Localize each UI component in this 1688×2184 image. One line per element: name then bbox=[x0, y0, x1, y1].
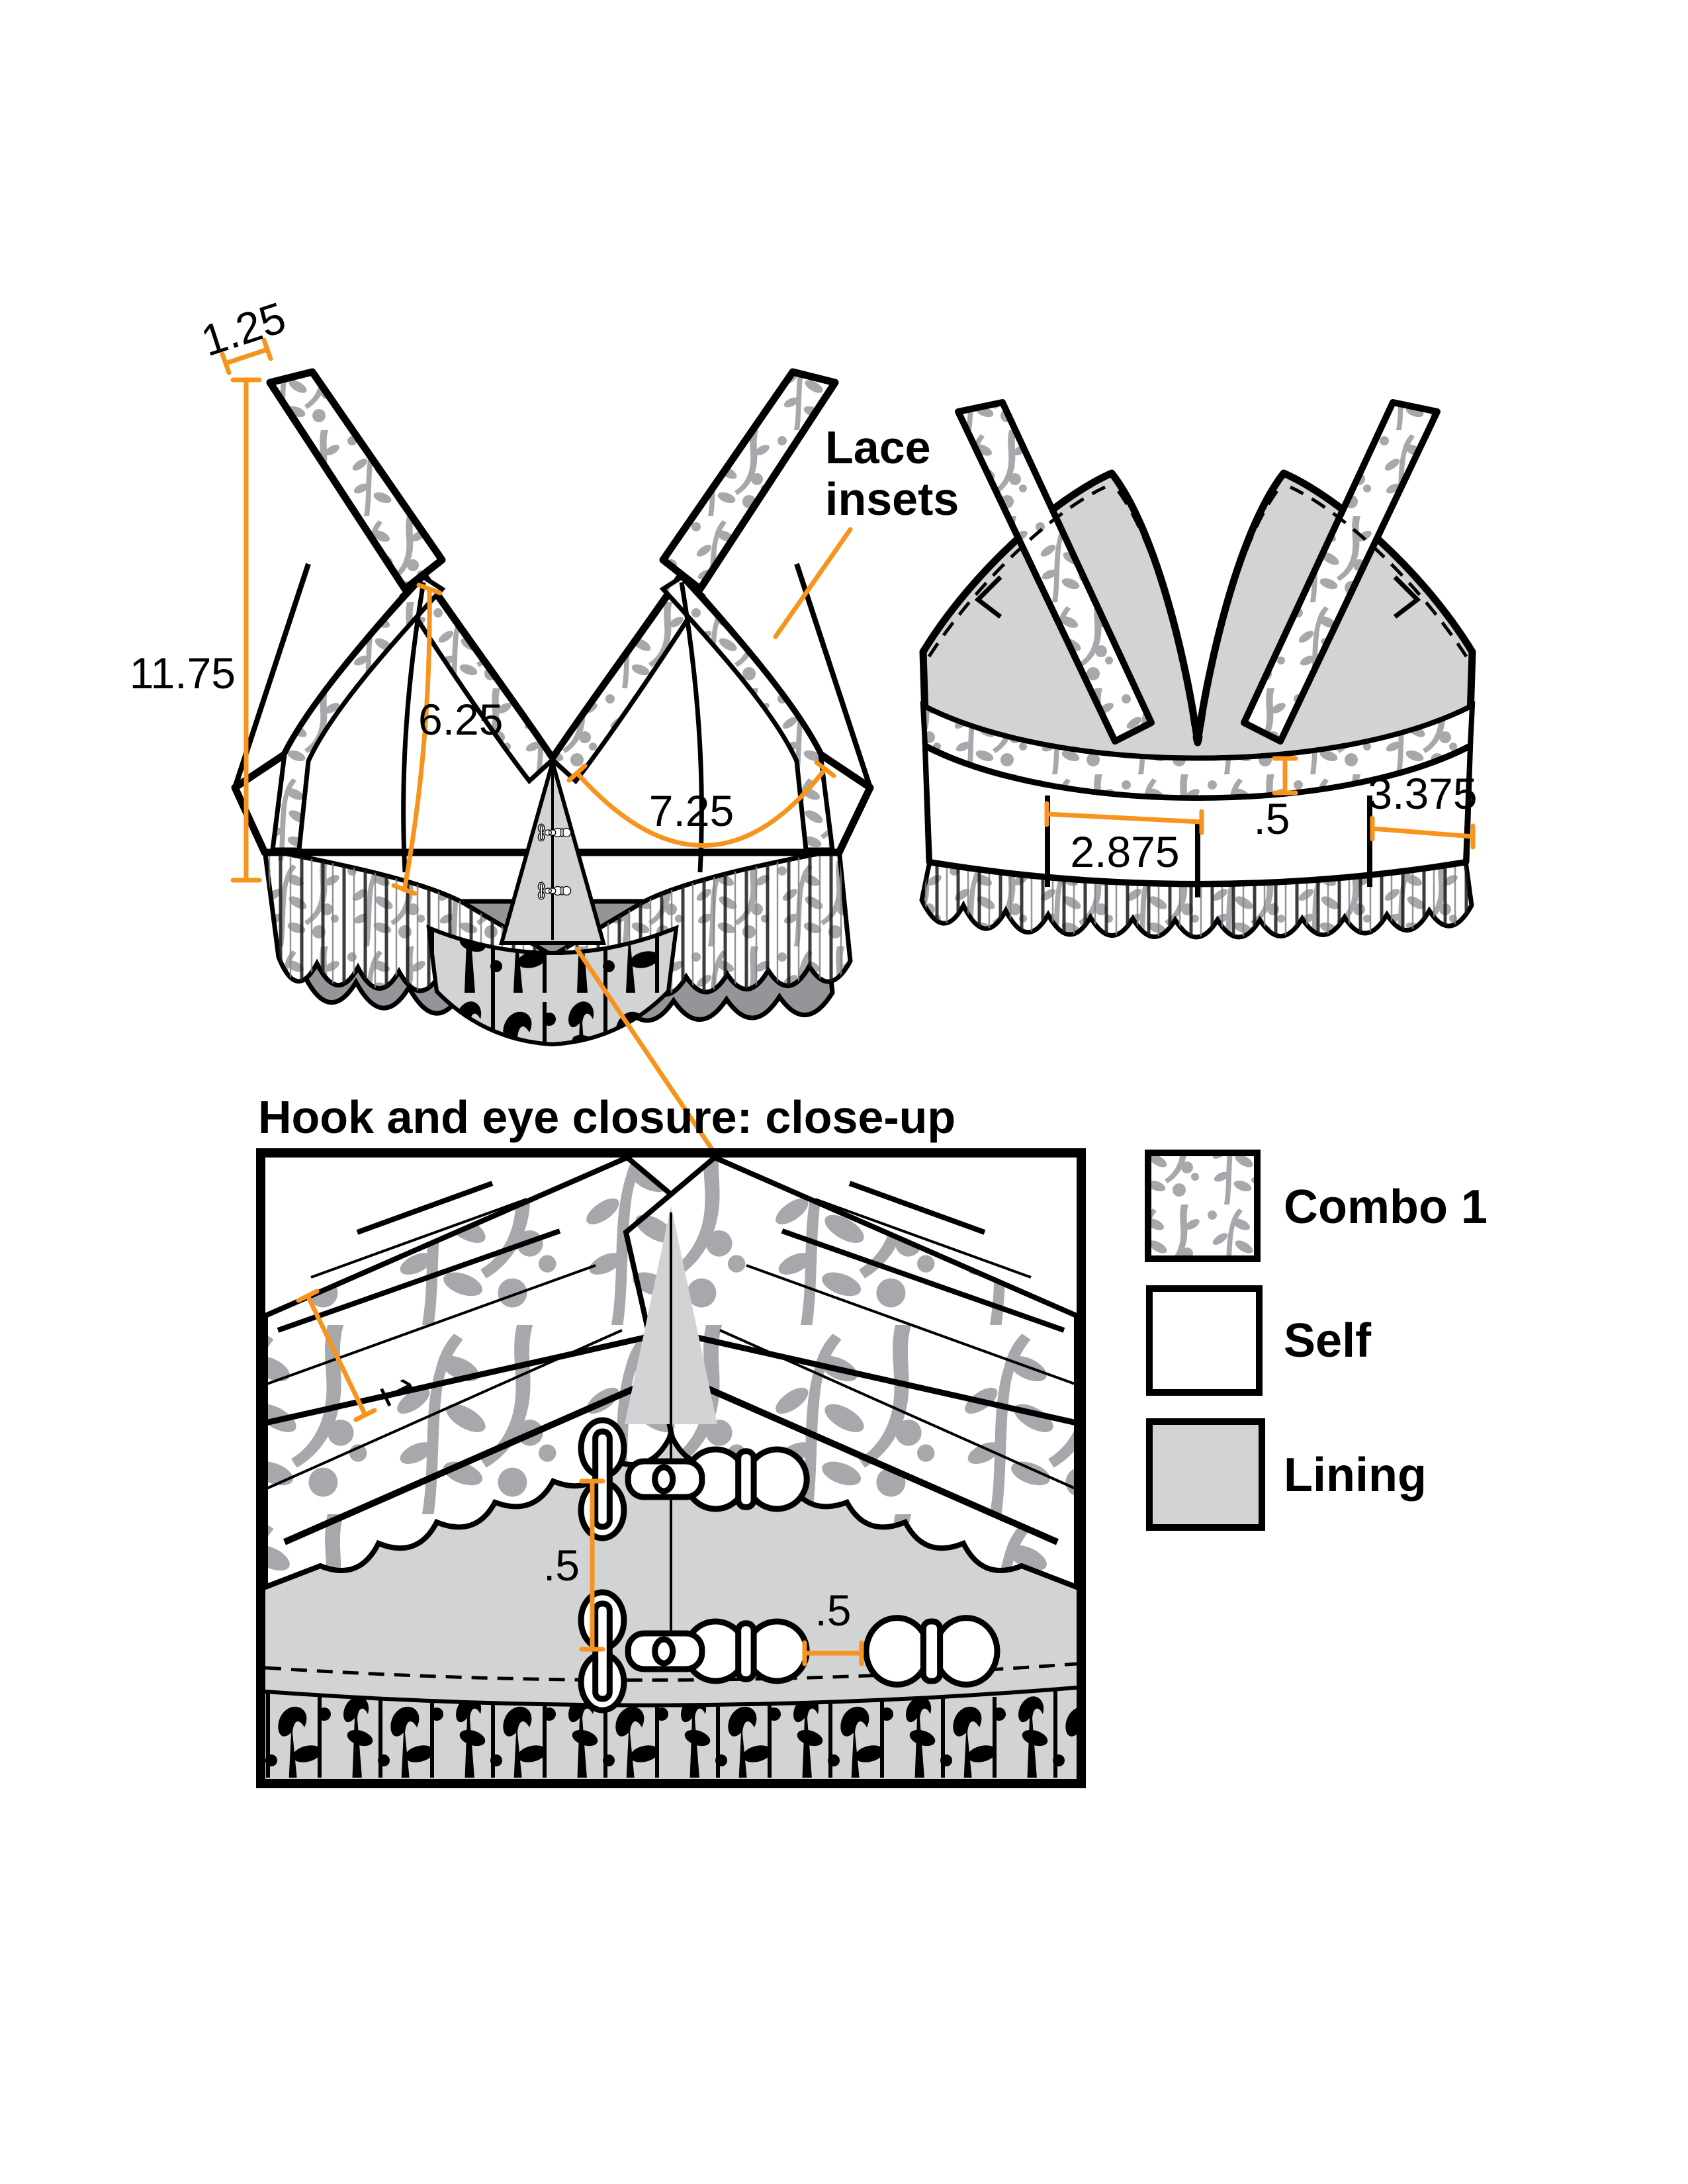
legend: Combo 1 Self Lining bbox=[1148, 1153, 1488, 1527]
back-panel-dim: 2.875 bbox=[1070, 827, 1179, 876]
legend-item-self: Self bbox=[1149, 1289, 1372, 1392]
spec-sheet: 1.25 11.75 6.25 7.25 .5 2. bbox=[0, 0, 1688, 2184]
closeup-box: 1 .5 .5 bbox=[261, 1153, 1081, 1784]
side-height-dim: 11.75 bbox=[130, 649, 236, 698]
hook-to-eye-dim: .5 bbox=[815, 1586, 851, 1635]
legend-item-combo1: Combo 1 bbox=[1148, 1153, 1488, 1259]
cup-bottom-dim: 7.25 bbox=[649, 786, 734, 835]
hook-spacing-dim: .5 bbox=[543, 1541, 580, 1590]
back-view bbox=[922, 402, 1472, 937]
front-strap-left bbox=[270, 372, 442, 589]
eye-icon bbox=[866, 1618, 997, 1685]
self-swatch-icon bbox=[1149, 1289, 1259, 1392]
band-trim-dim: .5 bbox=[1253, 794, 1290, 843]
legend-label-self: Self bbox=[1284, 1314, 1372, 1367]
combo1-swatch-icon bbox=[1148, 1153, 1257, 1259]
legend-label-combo1: Combo 1 bbox=[1284, 1181, 1488, 1234]
legend-label-lining: Lining bbox=[1284, 1449, 1427, 1502]
side-back-panel-dim: 3.375 bbox=[1368, 769, 1477, 818]
cup-seam-dim: 6.25 bbox=[418, 695, 503, 744]
legend-item-lining: Lining bbox=[1149, 1422, 1427, 1527]
lace-insets-callout: Lace insets bbox=[776, 422, 959, 637]
front-view bbox=[235, 372, 870, 1044]
front-strap-right bbox=[663, 372, 835, 589]
strap-width-dim: 1.25 bbox=[195, 293, 291, 365]
closeup-title: Hook and eye closure: close-up bbox=[258, 1091, 955, 1143]
flat-sketch-canvas: 1.25 11.75 6.25 7.25 .5 2. bbox=[0, 0, 1688, 2184]
lining-swatch-icon bbox=[1149, 1422, 1262, 1527]
lace-insets-label-line2: insets bbox=[825, 473, 959, 525]
lace-insets-label-line1: Lace bbox=[825, 422, 931, 473]
